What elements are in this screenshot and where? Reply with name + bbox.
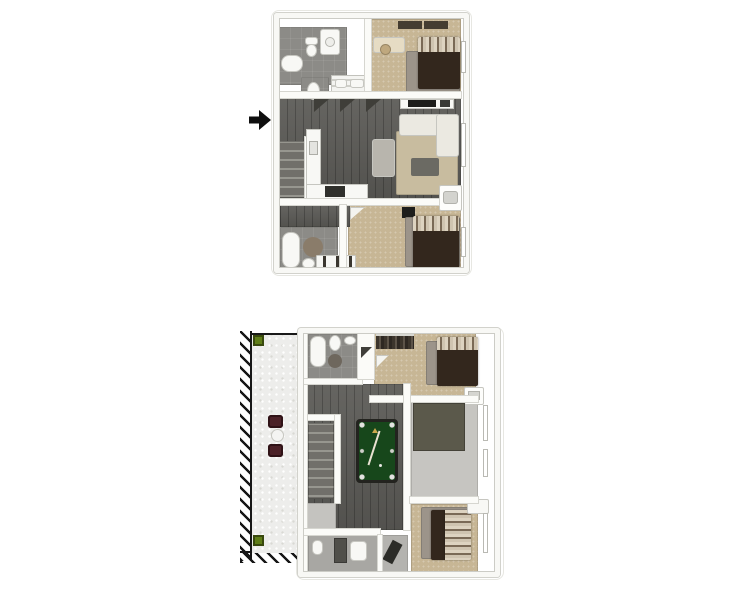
window (461, 123, 466, 167)
window (461, 41, 466, 73)
window (461, 227, 466, 257)
exterior-walls (274, 13, 469, 273)
entry-arrow-icon (249, 109, 272, 131)
window (483, 513, 488, 553)
patio-railing-hatch-left (240, 331, 252, 561)
plant-2 (253, 535, 264, 546)
lower-floor-plan-image[interactable] (240, 327, 502, 578)
patio-chair (268, 415, 283, 428)
patio-floor (252, 333, 302, 553)
patio-chair-2 (268, 444, 283, 457)
window (483, 405, 488, 441)
upper-floor-plan-image[interactable] (271, 10, 472, 276)
exterior-walls-lower (298, 328, 500, 577)
window (483, 449, 488, 477)
plant (253, 335, 264, 346)
patio-table (272, 430, 283, 441)
